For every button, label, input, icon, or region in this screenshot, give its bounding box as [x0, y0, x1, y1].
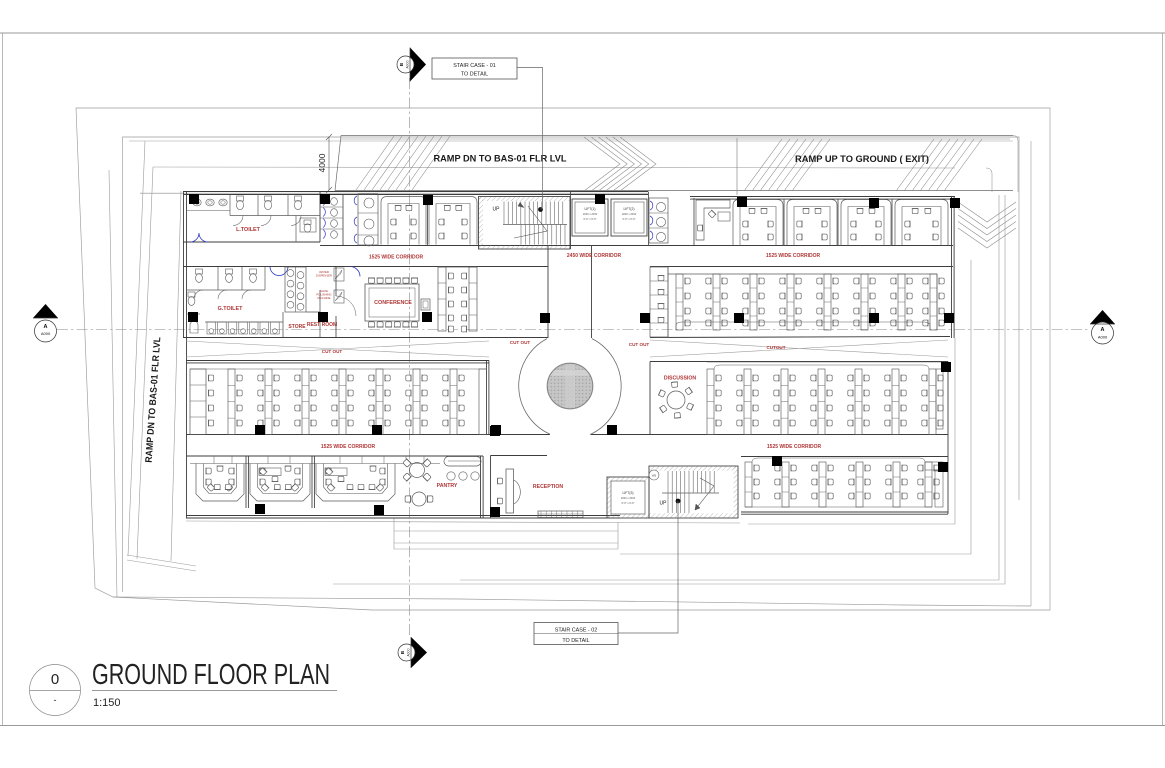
- svg-text:WB: WB: [652, 474, 656, 478]
- svg-text:GROUND FLOOR PLAN: GROUND FLOOR PLAN: [92, 659, 330, 691]
- svg-text:UP: UP: [493, 207, 501, 213]
- svg-text:STORE: STORE: [288, 324, 306, 330]
- svg-text:L.TOILET: L.TOILET: [236, 227, 261, 233]
- svg-text:2000 x 2000: 2000 x 2000: [622, 212, 637, 216]
- svg-text:CUT OUT: CUT OUT: [629, 342, 650, 347]
- svg-text:-: -: [54, 695, 57, 705]
- svg-text:0: 0: [51, 671, 59, 688]
- svg-text:REST ROOM: REST ROOM: [307, 322, 337, 328]
- svg-text:1525 WIDE CORRIDOR: 1525 WIDE CORRIDOR: [321, 444, 376, 450]
- svg-text:LIFT(3): LIFT(3): [622, 491, 633, 495]
- svg-text:A000: A000: [407, 648, 411, 656]
- svg-text:CUT OUT: CUT OUT: [510, 340, 531, 345]
- svg-text:1525 WIDE CORRIDOR: 1525 WIDE CORRIDOR: [766, 253, 821, 259]
- svg-text:6'-6" x 6'-6": 6'-6" x 6'-6": [583, 217, 596, 221]
- svg-text:2000 x 2000: 2000 x 2000: [583, 212, 598, 216]
- svg-text:RECEPTION: RECEPTION: [533, 484, 564, 490]
- svg-text:TO DETAIL: TO DETAIL: [461, 72, 488, 78]
- svg-text:G.TOILET: G.TOILET: [218, 306, 243, 312]
- svg-text:LIFT(1): LIFT(1): [584, 207, 595, 211]
- svg-text:DISPENSER: DISPENSER: [316, 273, 332, 277]
- svg-text:A000: A000: [1098, 335, 1108, 340]
- svg-text:UP: UP: [660, 501, 668, 507]
- svg-text:CONFERENCE: CONFERENCE: [374, 300, 412, 306]
- svg-text:STAIR CASE - 01: STAIR CASE - 01: [453, 63, 495, 69]
- svg-text:1525 WIDE CORRIDOR: 1525 WIDE CORRIDOR: [369, 255, 424, 261]
- svg-text:4000: 4000: [317, 153, 327, 172]
- svg-text:A000: A000: [406, 60, 410, 68]
- svg-text:1525 WIDE CORRIDOR: 1525 WIDE CORRIDOR: [767, 444, 822, 450]
- svg-text:CUT OUT: CUT OUT: [322, 349, 343, 354]
- svg-text:A000: A000: [41, 331, 51, 336]
- svg-text:STAIR CASE - 02: STAIR CASE - 02: [555, 628, 597, 634]
- svg-text:LIFT(2): LIFT(2): [623, 207, 634, 211]
- svg-text:A: A: [1101, 327, 1105, 333]
- svg-text:A: A: [44, 324, 48, 330]
- svg-text:CUTOUT: CUTOUT: [766, 345, 785, 350]
- svg-text:6'-6" x 6'-6": 6'-6" x 6'-6": [622, 217, 635, 221]
- svg-text:6'-6" x 6'-6": 6'-6" x 6'-6": [621, 501, 634, 505]
- svg-text:1:150: 1:150: [93, 697, 121, 709]
- svg-text:PANTRY: PANTRY: [437, 483, 458, 489]
- svg-text:TO DETAIL: TO DETAIL: [562, 638, 589, 644]
- svg-text:2450 WIDE CORRIDOR: 2450 WIDE CORRIDOR: [567, 253, 622, 259]
- svg-text:DISCUSSION: DISCUSSION: [664, 376, 697, 382]
- svg-text:MACHINE: MACHINE: [318, 296, 331, 300]
- svg-text:RAMP DN TO BAS-01 FLR LVL: RAMP DN TO BAS-01 FLR LVL: [434, 154, 567, 165]
- svg-text:2000 x 2000: 2000 x 2000: [621, 496, 636, 500]
- svg-text:RAMP UP TO GROUND ( EXIT): RAMP UP TO GROUND ( EXIT): [795, 154, 929, 165]
